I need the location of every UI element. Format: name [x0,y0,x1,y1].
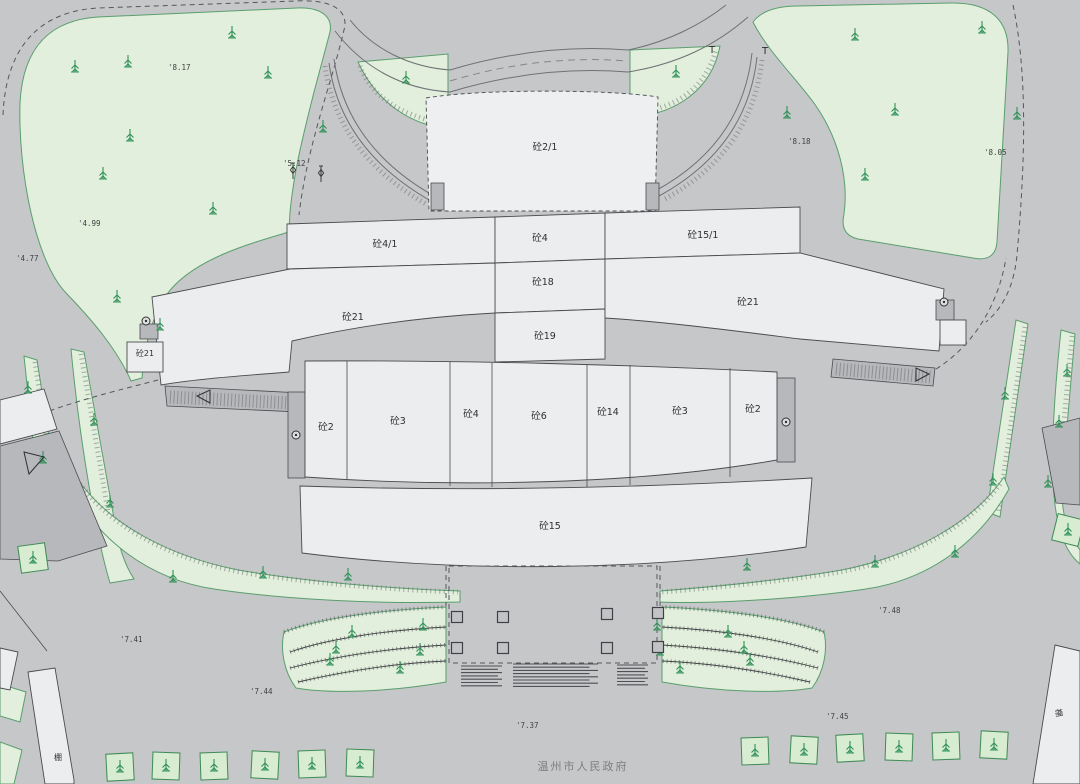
label-b15: 砼15 [539,520,561,532]
label-b4-top: 砼4 [532,232,548,244]
building-b2-1-notch-right [646,183,659,210]
plan-footer-title: 温州市人民政府 [538,759,629,773]
label-b2-row-left: 砼2 [318,421,334,433]
elevation-label: '8.17 [168,63,191,72]
label-b4-row: 砼4 [463,408,479,420]
t-marker: T [708,45,716,56]
label-b21-small: 砼21 [136,348,154,358]
elevation-label: '8.18 [788,137,811,146]
label-b18: 砼18 [532,276,554,288]
t-marker: T [761,46,769,57]
column-marker-dot [943,301,945,303]
elevation-label: '7.48 [878,606,901,615]
label-b3-row-right: 砼3 [672,405,688,417]
plaza-column [498,612,509,623]
label-b2-1: 砼2/1 [533,141,558,153]
label-b14-row: 砼14 [597,406,619,418]
elevation-label: '7.41 [120,635,143,644]
label-b21-right: 砼21 [737,296,759,308]
plaza-column [452,612,463,623]
elevation-label: '7.44 [250,687,273,696]
plaza-column [452,643,463,654]
elevation-label: '4.99 [78,219,101,228]
column-marker-dot [145,320,147,322]
column-marker-dot [785,421,787,423]
label-b2-row-right: 砼2 [745,403,761,415]
label-shed-left: 棚 [54,752,62,762]
column-marker-dot [295,434,297,436]
site-plan: 砼2/1 砼4/1 砼4 砼15/1 砼18 砼19 砼21 砼21 砼21 砼… [0,0,1080,784]
b21-tab-gray-left [140,324,158,339]
site-plan-canvas: 砼2/1 砼4/1 砼4 砼15/1 砼18 砼19 砼21 砼21 砼21 砼… [0,0,1080,784]
label-shed-right: 棚 [1053,708,1064,718]
elevation-label: '4.77 [16,254,39,263]
label-b15-1: 砼15/1 [688,229,719,241]
building-b2-1-notch-left [431,183,444,210]
label-b21-left: 砼21 [342,311,364,323]
plaza-column [653,642,664,653]
label-b19: 砼19 [534,330,556,342]
b21-tab-right [940,320,966,345]
elevation-label: '7.37 [516,721,539,730]
elevation-label: '8.05 [984,148,1007,157]
plaza-column [653,608,664,619]
building-b4-top [495,213,605,263]
plaza-column [602,609,613,620]
elevation-label: '7.45 [826,712,849,721]
label-b6-row: 砼6 [531,410,547,422]
label-b3-row-left: 砼3 [390,415,406,427]
label-b4-1: 砼4/1 [373,238,398,250]
plaza-column [498,643,509,654]
plaza-column [602,643,613,654]
